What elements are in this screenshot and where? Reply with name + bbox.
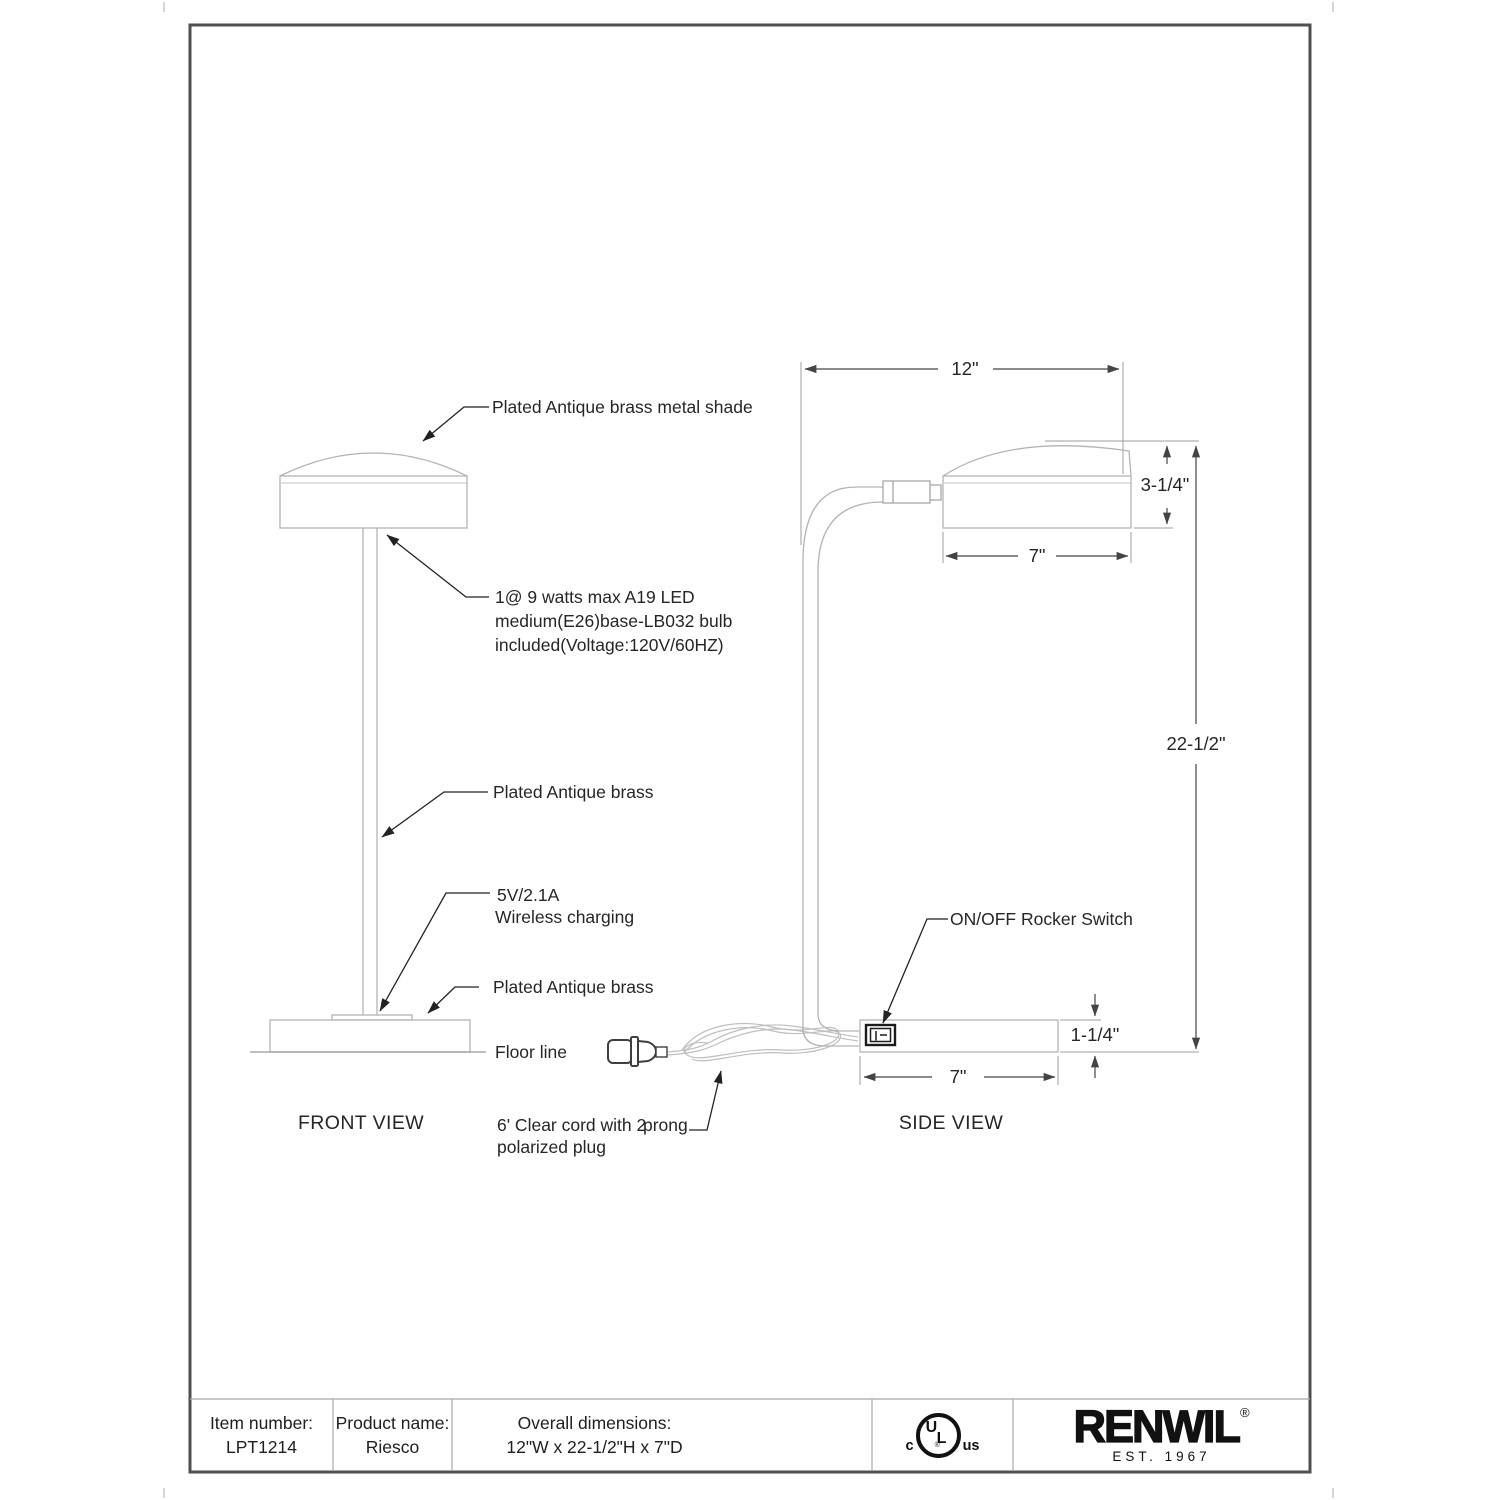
dim-label-overall-height: 22-1/2": [1166, 733, 1225, 754]
technical-drawing: Plated Antique brass metal shade 1@ 9 wa…: [0, 0, 1500, 1500]
annotation-charging-line2: Wireless charging: [495, 907, 634, 927]
cul-us-certification-mark: c U L ® us: [872, 1399, 1013, 1472]
brand-registered-mark: ®: [1240, 1406, 1250, 1419]
product-name-value: Riesco: [366, 1438, 420, 1457]
annotation-rocker-switch: ON/OFF Rocker Switch: [950, 909, 1133, 929]
overall-dimensions-label: Overall dimensions:: [518, 1414, 672, 1433]
product-name-label: Product name:: [336, 1414, 450, 1433]
dim-label-base-width: 7": [950, 1066, 967, 1087]
brand-name: RENWIL: [1073, 1407, 1238, 1448]
ul-registered-mark: ®: [935, 1442, 940, 1449]
footer-item-number: Item number: LPT1214: [190, 1400, 333, 1471]
front-charging-pad: [332, 1015, 412, 1020]
dim-label-base-height: 1-1/4": [1071, 1024, 1120, 1045]
rocker-switch: [866, 1025, 895, 1045]
annotation-cord-line2: polarized plug: [497, 1137, 606, 1157]
footer-product-name: Product name: Riesco: [333, 1400, 452, 1471]
annotation-shade: Plated Antique brass metal shade: [492, 397, 753, 417]
side-socket-neck: [930, 485, 941, 500]
ul-monogram-u: U: [926, 1419, 938, 1437]
ul-circle-icon: U L ®: [916, 1413, 961, 1458]
side-socket: [883, 481, 930, 503]
brand-established: EST. 1967: [1112, 1449, 1210, 1464]
annotation-base: Plated Antique brass: [493, 977, 654, 997]
dim-label-shade-height: 3-1/4": [1141, 474, 1190, 495]
annotation-bulb-line1: 1@ 9 watts max A19 LED: [495, 587, 695, 607]
front-base: [270, 1020, 470, 1052]
spec-sheet-page: Plated Antique brass metal shade 1@ 9 wa…: [0, 0, 1500, 1500]
item-number-value: LPT1214: [226, 1438, 297, 1457]
annotation-cord-line1a: 6' Clear cord with 2: [497, 1115, 646, 1135]
side-view-label: SIDE VIEW: [899, 1112, 1004, 1134]
footer-overall-dimensions: Overall dimensions: 12"W x 22-1/2"H x 7"…: [452, 1400, 737, 1471]
page-border: [190, 25, 1310, 1472]
dim-label-overall-width: 12": [951, 358, 978, 379]
ul-c-label: c: [906, 1438, 914, 1454]
annotation-bulb-line2: medium(E26)base-LB032 bulb: [495, 611, 732, 631]
overall-dimensions-value: 12"W x 22-1/2"H x 7"D: [506, 1438, 682, 1457]
annotation-stem: Plated Antique brass: [493, 782, 654, 802]
ul-us-label: us: [963, 1438, 980, 1454]
front-view-label: FRONT VIEW: [298, 1112, 424, 1134]
item-number-label: Item number:: [210, 1414, 313, 1433]
annotation-floor-line: Floor line: [495, 1042, 567, 1062]
dim-label-shade-width: 7": [1029, 545, 1046, 566]
annotation-cord-line1b: prong: [643, 1115, 688, 1135]
annotation-bulb-line3: included(Voltage:120V/60HZ): [495, 635, 724, 655]
renwil-logo: RENWIL ® EST. 1967: [1013, 1399, 1310, 1472]
annotation-charging-line1: 5V/2.1A: [497, 885, 560, 905]
